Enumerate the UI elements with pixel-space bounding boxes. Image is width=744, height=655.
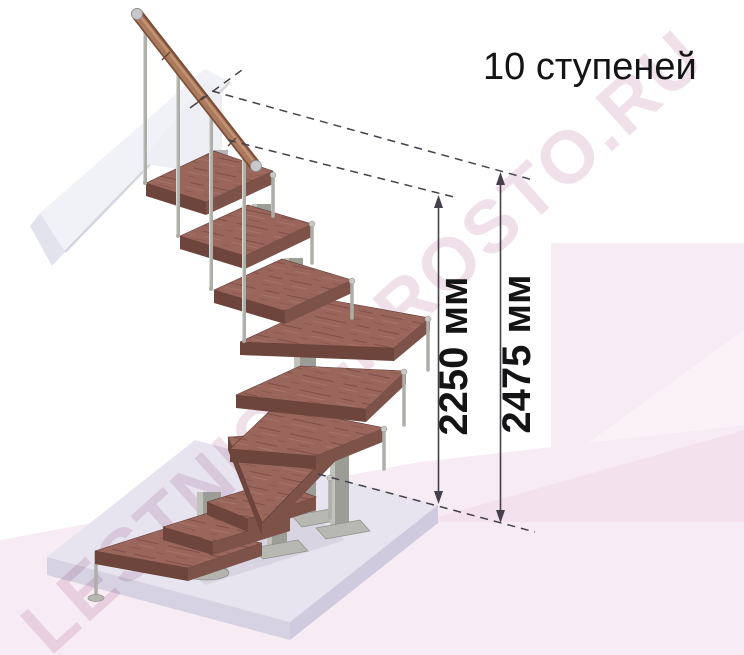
- handrail-cap-bottom: [251, 161, 262, 172]
- handrail-cap-top: [132, 9, 143, 20]
- staircase-diagram: LESTNICA-PROSTO.RU: [0, 0, 744, 655]
- steps-count-label: 10 ступеней: [483, 46, 697, 88]
- thin-front-leg-base: [88, 595, 104, 602]
- dimension-value-2250: 2250 мм: [432, 276, 476, 435]
- dimension-value-2475: 2475 мм: [495, 274, 539, 433]
